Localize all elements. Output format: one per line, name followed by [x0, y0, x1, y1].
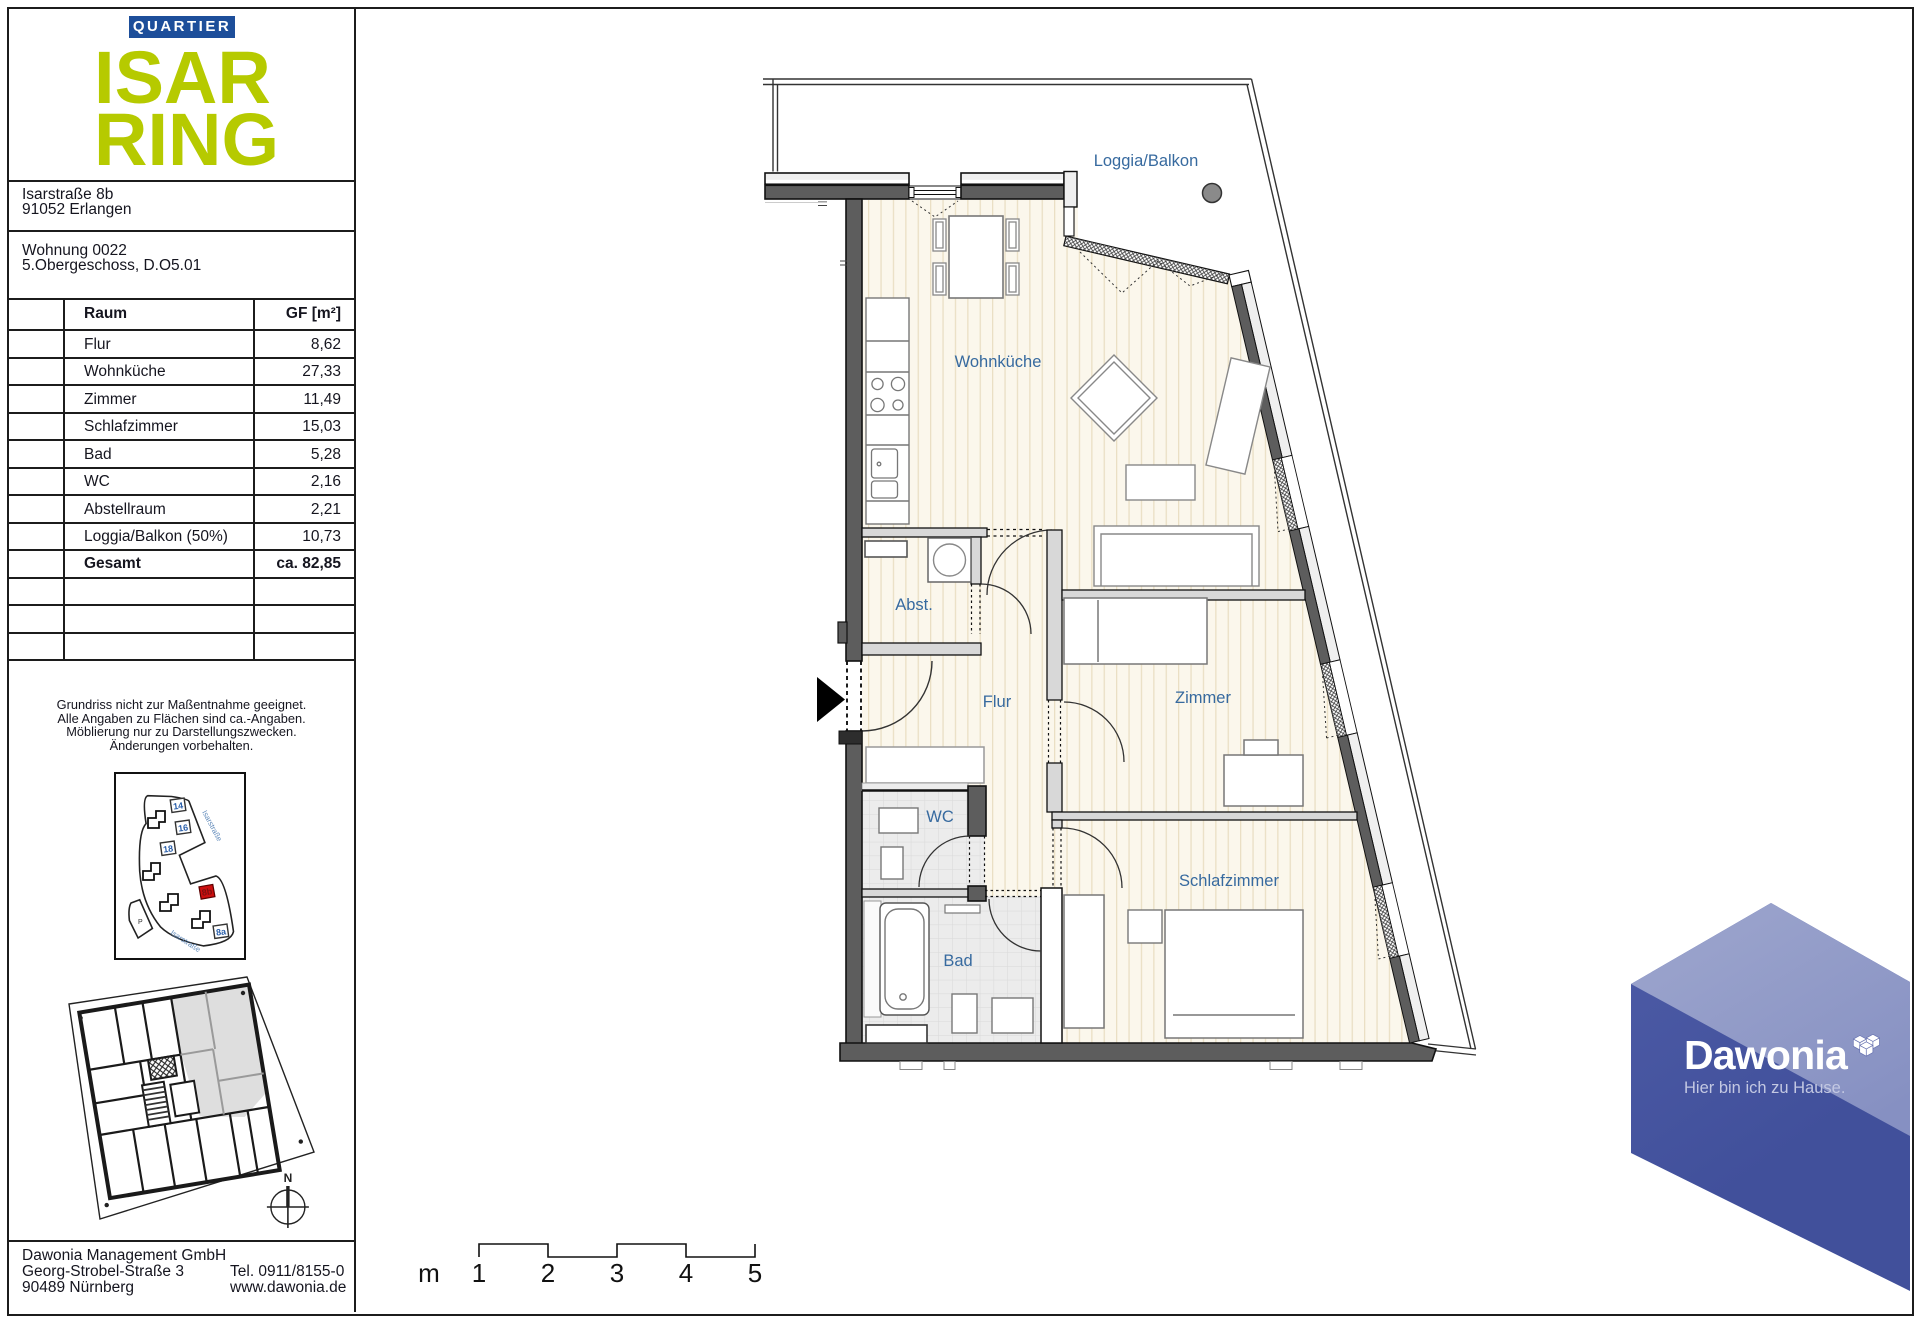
- svg-text:1: 1: [472, 1258, 486, 1288]
- svg-text:Loggia/Balkon: Loggia/Balkon: [1094, 152, 1199, 170]
- svg-text:Zimmer: Zimmer: [1175, 689, 1231, 707]
- svg-text:WC: WC: [926, 808, 954, 826]
- svg-text:Bad: Bad: [943, 952, 972, 970]
- svg-text:2: 2: [541, 1258, 555, 1288]
- svg-text:4: 4: [679, 1258, 693, 1288]
- svg-text:Abst.: Abst.: [895, 596, 933, 614]
- svg-text:3: 3: [610, 1258, 624, 1288]
- svg-text:Dawonia: Dawonia: [1684, 1032, 1849, 1078]
- svg-text:5: 5: [748, 1258, 762, 1288]
- svg-text:Flur: Flur: [983, 693, 1012, 711]
- svg-text:Wohnküche: Wohnküche: [955, 353, 1042, 371]
- svg-text:Schlafzimmer: Schlafzimmer: [1179, 872, 1279, 890]
- svg-text:Hier bin ich zu Hause.: Hier bin ich zu Hause.: [1684, 1079, 1845, 1097]
- svg-text:m: m: [418, 1258, 440, 1288]
